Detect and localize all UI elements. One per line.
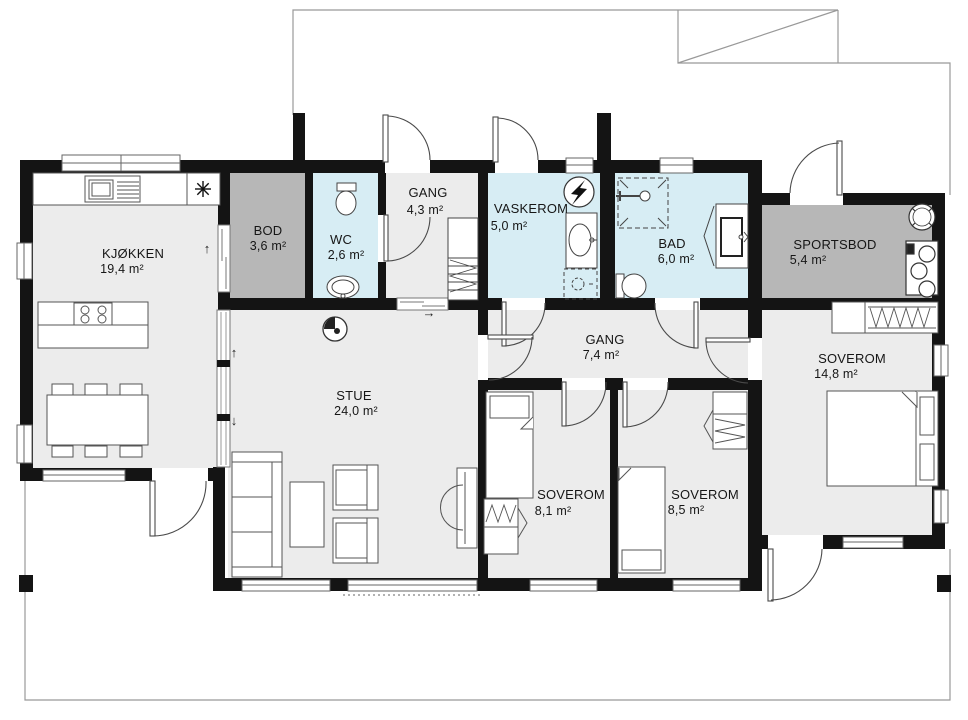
porch-post-right <box>597 113 611 160</box>
soverom-3-terrace-door <box>768 549 822 601</box>
sportsbod-fixtures <box>906 204 938 297</box>
wc-sink <box>327 276 359 298</box>
wc-toilet <box>336 183 356 215</box>
entry-door-2 <box>493 117 538 162</box>
sliding-arrow-right-gang: → <box>423 306 436 319</box>
room-area-gang-hall: 7,4 m² <box>583 348 620 362</box>
room-area-gang-entry: 4,3 m² <box>407 203 444 217</box>
room-label-soverom-1: SOVEROM <box>537 488 605 502</box>
window-soverom-2 <box>673 580 740 591</box>
dining-table <box>47 384 148 457</box>
sliding-door-bod <box>218 225 230 292</box>
bed-single-1 <box>486 392 533 498</box>
chair <box>52 384 73 395</box>
water-heater <box>909 204 935 230</box>
fridge-icon <box>195 181 211 197</box>
window-kjokken-bottom <box>43 470 125 481</box>
room-area-wc: 2,6 m² <box>328 248 365 262</box>
room-label-kjokken: KJØKKEN <box>102 247 164 261</box>
room-label-gang-hall: GANG <box>585 333 624 347</box>
sportsbod-door <box>790 141 842 195</box>
room-label-soverom-2: SOVEROM <box>671 488 739 502</box>
armchair-2 <box>333 518 378 563</box>
kjokken-terrace-door <box>150 481 206 536</box>
ventilation-unit <box>906 241 938 297</box>
room-area-kjokken: 19,4 m² <box>100 262 144 276</box>
chair <box>120 384 142 395</box>
room-area-bad: 6,0 m² <box>658 252 695 266</box>
room-area-stue: 24,0 m² <box>334 404 378 418</box>
chair <box>120 446 142 457</box>
room-label-sportsbod: SPORTSBOD <box>793 238 876 252</box>
window-soverom-1 <box>530 580 597 591</box>
kitchen-counter <box>33 173 220 205</box>
room-label-wc: WC <box>330 233 352 247</box>
room-area-soverom-2: 8,5 m² <box>668 503 705 517</box>
window-vaskerom-top <box>566 158 593 173</box>
room-label-bad: BAD <box>658 237 685 251</box>
floor-plan: KJØKKEN 19,4 m² BOD 3,6 m² WC 2,6 m² GAN… <box>0 0 968 720</box>
window-soverom-3-right-2 <box>934 490 948 523</box>
window-left-1 <box>17 243 32 279</box>
room-area-vaskerom: 5,0 m² <box>491 219 528 233</box>
window-soverom-3-bottom <box>843 537 903 548</box>
sliding-arrow-up-stue: ↑ <box>231 346 238 359</box>
sliding-arrow-up-kjokken: ↑ <box>204 242 211 255</box>
chair <box>85 384 107 395</box>
sliding-terrace-door-stue <box>343 580 483 595</box>
room-label-stue: STUE <box>336 389 371 403</box>
armchair-1 <box>333 465 378 510</box>
window-kjokken-top <box>62 155 180 171</box>
carport-diagonal <box>678 10 838 63</box>
porch-post-left <box>293 113 305 160</box>
room-area-sportsbod: 5,4 m² <box>790 253 827 267</box>
kitchen-island <box>38 302 148 348</box>
window-left-2 <box>17 425 32 463</box>
window-bad-top <box>660 158 693 173</box>
cooktop <box>74 303 112 325</box>
laundry-sink <box>566 213 597 268</box>
room-area-soverom-1: 8,1 m² <box>535 504 572 518</box>
bed-double <box>827 391 938 486</box>
stairs <box>448 218 478 300</box>
fireplace <box>323 317 347 341</box>
window-stue-bottom <box>242 580 330 591</box>
bad-toilet <box>616 274 646 298</box>
entry-door-1 <box>383 115 430 162</box>
soverom-3-furniture <box>827 302 938 486</box>
glazed-partition-kjokken-stue <box>217 310 230 467</box>
electrical-panel-icon <box>564 177 594 207</box>
sofa <box>232 452 282 577</box>
sliding-arrow-down-stue: ↓ <box>231 414 238 427</box>
bed-single-2 <box>618 467 665 573</box>
chair <box>85 446 107 457</box>
room-area-soverom-3: 14,8 m² <box>814 367 858 381</box>
coffee-table <box>290 482 324 547</box>
window-soverom-3-right-1 <box>934 345 948 376</box>
room-label-vaskerom: VASKEROM <box>494 202 568 216</box>
room-label-bod: BOD <box>254 224 283 238</box>
room-area-bod: 3,6 m² <box>250 239 287 253</box>
wardrobe-3 <box>832 302 938 333</box>
room-label-soverom-3: SOVEROM <box>818 352 886 366</box>
chair <box>52 446 73 457</box>
room-label-gang-entry: GANG <box>408 186 447 200</box>
